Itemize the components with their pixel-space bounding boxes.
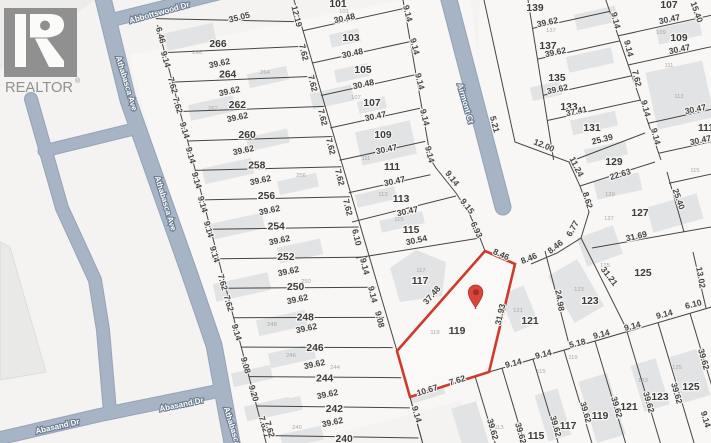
svg-text:119: 119 <box>568 355 577 361</box>
svg-text:113: 113 <box>393 194 410 205</box>
svg-text:254: 254 <box>268 221 285 232</box>
svg-text:123: 123 <box>638 378 648 384</box>
svg-text:129: 129 <box>605 192 615 198</box>
svg-text:246: 246 <box>286 353 296 359</box>
svg-text:123: 123 <box>581 296 598 307</box>
svg-text:103: 103 <box>342 33 359 44</box>
svg-text:266: 266 <box>192 50 202 56</box>
svg-text:264: 264 <box>260 70 270 76</box>
svg-text:111: 111 <box>362 156 371 162</box>
svg-text:105: 105 <box>354 65 371 76</box>
svg-text:244: 244 <box>316 373 333 384</box>
svg-text:109: 109 <box>656 30 666 36</box>
svg-text:109: 109 <box>374 130 391 141</box>
svg-text:111: 111 <box>384 162 400 173</box>
svg-text:119: 119 <box>430 330 439 336</box>
svg-text:117: 117 <box>416 268 425 274</box>
svg-text:121: 121 <box>513 308 523 314</box>
svg-text:262: 262 <box>208 106 218 112</box>
svg-text:107: 107 <box>660 0 677 11</box>
svg-text:115: 115 <box>690 168 699 174</box>
svg-text:264: 264 <box>219 69 236 80</box>
svg-text:107: 107 <box>363 98 380 109</box>
svg-text:252: 252 <box>277 252 294 263</box>
svg-text:121: 121 <box>521 316 538 327</box>
svg-text:127: 127 <box>604 216 614 222</box>
svg-text:139: 139 <box>526 3 543 14</box>
svg-text:262: 262 <box>229 100 246 111</box>
svg-text:240: 240 <box>292 425 302 431</box>
svg-text:113: 113 <box>378 192 387 198</box>
svg-text:256: 256 <box>258 191 275 202</box>
svg-text:125: 125 <box>672 365 682 371</box>
svg-text:244: 244 <box>330 365 340 371</box>
svg-text:113: 113 <box>674 94 683 100</box>
svg-text:®: ® <box>75 77 81 85</box>
svg-text:125: 125 <box>634 268 651 279</box>
svg-text:256: 256 <box>296 173 306 179</box>
svg-text:125: 125 <box>682 382 699 393</box>
svg-text:107: 107 <box>351 95 361 101</box>
svg-text:250: 250 <box>301 279 311 285</box>
svg-text:115: 115 <box>536 369 545 375</box>
svg-text:119: 119 <box>449 326 466 337</box>
svg-text:129: 129 <box>605 157 622 168</box>
svg-text:131: 131 <box>583 123 600 134</box>
svg-text:260: 260 <box>239 130 256 141</box>
svg-text:240: 240 <box>336 434 353 443</box>
svg-text:266: 266 <box>209 39 226 50</box>
svg-text:115: 115 <box>528 431 545 442</box>
svg-text:242: 242 <box>326 404 343 415</box>
svg-text:248: 248 <box>267 322 277 328</box>
svg-text:258: 258 <box>248 161 265 172</box>
svg-text:REALTOR: REALTOR <box>5 79 73 96</box>
svg-text:246: 246 <box>306 343 323 354</box>
svg-text:111: 111 <box>665 63 674 69</box>
svg-text:117: 117 <box>412 276 429 287</box>
svg-text:123: 123 <box>574 287 584 293</box>
svg-text:137: 137 <box>546 28 556 34</box>
svg-text:127: 127 <box>631 208 648 219</box>
